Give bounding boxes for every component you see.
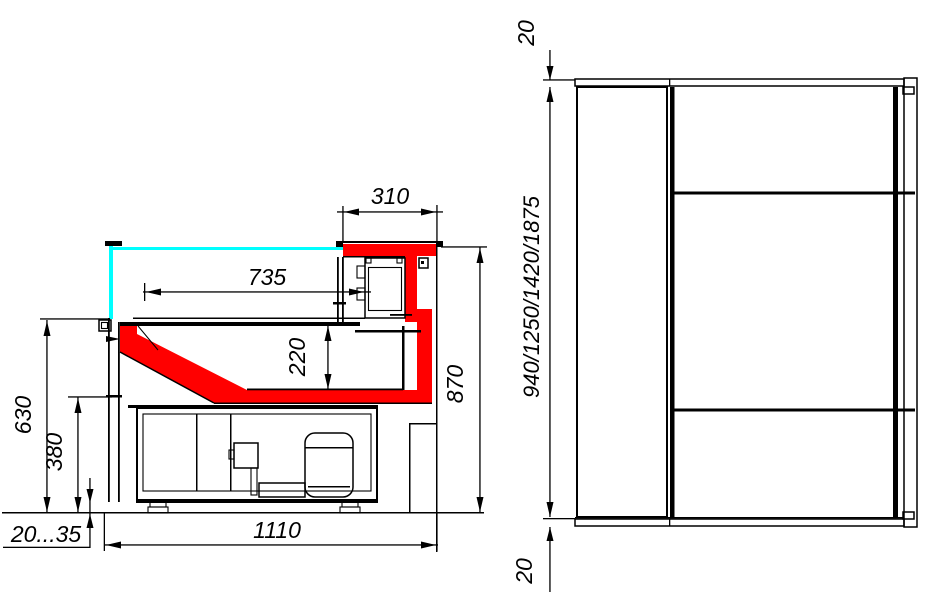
dim-lengths-label: 940/1250/1420/1875 — [519, 195, 544, 398]
front-glass-band — [577, 87, 667, 517]
deck-surface-line — [247, 389, 403, 391]
dim-630: 630 — [10, 318, 110, 512]
panel-seam-lower — [673, 409, 915, 412]
worktop-upper-line — [133, 318, 365, 320]
end-panel-bottom-joint — [669, 519, 670, 526]
dim-310-label: 310 — [371, 183, 410, 209]
front-panel-outer-line — [108, 318, 110, 502]
control-box — [234, 443, 258, 468]
compressor-top-seam — [305, 447, 353, 449]
dim-735: 735 — [143, 264, 371, 301]
dim-20-top-label: 20 — [513, 20, 539, 47]
end-panel-top — [575, 79, 904, 86]
dim-735-label: 735 — [248, 264, 287, 290]
rear-frame-bar — [893, 87, 898, 517]
deck-bottom-line — [214, 403, 432, 405]
rear-column-tie — [333, 302, 346, 305]
compressor-bottom-seam — [308, 486, 350, 488]
glass-top-clamp — [105, 241, 122, 246]
front-panel-inner-line — [118, 322, 120, 502]
end-panel-bottom — [575, 519, 904, 526]
dim-20-bottom: 20 — [511, 518, 575, 592]
drawing-canvas: 310 735 220 870 — [0, 0, 930, 606]
side-section-view: 310 735 220 870 — [2, 183, 487, 552]
dim-310: 310 — [337, 183, 443, 242]
leader-arrow — [106, 336, 120, 342]
canopy-highlight — [343, 244, 437, 256]
rear-step-vertical — [409, 423, 411, 512]
dim-220-label: 220 — [284, 338, 310, 378]
floor-line — [2, 512, 484, 514]
dim-lengths: 940/1250/1420/1875 — [519, 87, 554, 517]
well-rear-wall-line — [402, 326, 405, 390]
rear-column-line-a — [337, 257, 339, 322]
dim-870: 870 — [441, 246, 487, 512]
front-sill-bracket-core — [102, 323, 108, 329]
dim-220: 220 — [284, 326, 332, 389]
body-bottom-edge — [575, 517, 904, 518]
canopy-left-cap — [336, 241, 343, 247]
end-panel-top-joint — [669, 79, 670, 86]
duct-bracket-dot — [421, 261, 424, 264]
dim-20-bottom-label: 20 — [511, 558, 537, 585]
top-glass-shelf — [113, 247, 343, 250]
rear-panel-strip — [904, 78, 917, 527]
compartment-base — [137, 499, 377, 502]
canopy-top-edge — [341, 241, 440, 243]
technical-drawing-page: 310 735 220 870 — [0, 0, 930, 606]
panel-seam-upper — [673, 192, 915, 195]
duct-ledge-line — [390, 314, 412, 316]
dim-20-top: 20 — [513, 20, 575, 81]
glass-frame-bar — [670, 87, 673, 517]
compartment-divider-2 — [230, 414, 232, 491]
dim-380-label: 380 — [41, 433, 67, 472]
front-glass-pane — [109, 243, 113, 319]
canopy-right-cap — [437, 241, 443, 247]
dim-1110: 1110 — [104, 512, 438, 551]
evaporator-clip-upper — [357, 266, 365, 278]
rear-column-line-b — [342, 257, 344, 322]
dim-380: 380 — [41, 396, 112, 512]
rear-panel-line — [436, 242, 438, 552]
compartment-divider-1 — [196, 414, 198, 491]
rear-step-horizontal — [409, 423, 437, 425]
dim-1110-label: 1110 — [253, 517, 301, 543]
condensate-tray — [259, 483, 305, 497]
dim-630-label: 630 — [10, 396, 36, 435]
plan-view: 20 940/1250/1420/1875 20 — [511, 20, 917, 592]
dim-870-label: 870 — [442, 365, 468, 404]
air-duct-inner-wall-highlight — [405, 256, 417, 322]
worktop-thick-line — [120, 322, 360, 326]
worktop-rear-ledge — [355, 330, 421, 333]
evaporator-clip-lower — [357, 288, 365, 300]
dim-foot-range-label: 20...35 — [10, 521, 82, 547]
evaporator-core — [369, 268, 402, 311]
canopy-front-edge — [673, 87, 675, 517]
